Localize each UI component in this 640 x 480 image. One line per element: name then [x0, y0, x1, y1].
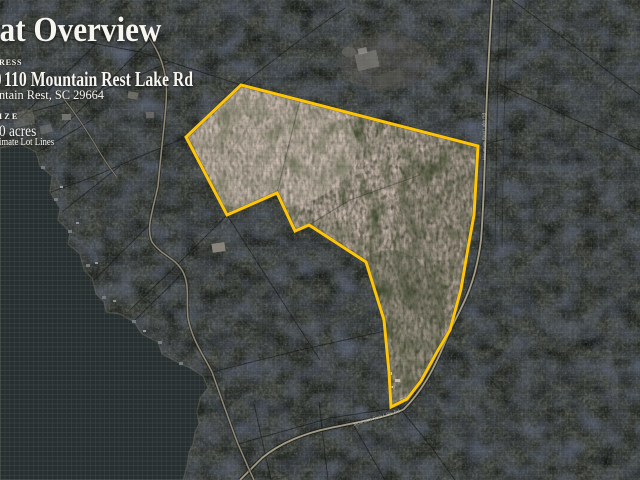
svg-text:Mountain Rest Lake Rd: Mountain Rest Lake Rd	[482, 112, 487, 160]
